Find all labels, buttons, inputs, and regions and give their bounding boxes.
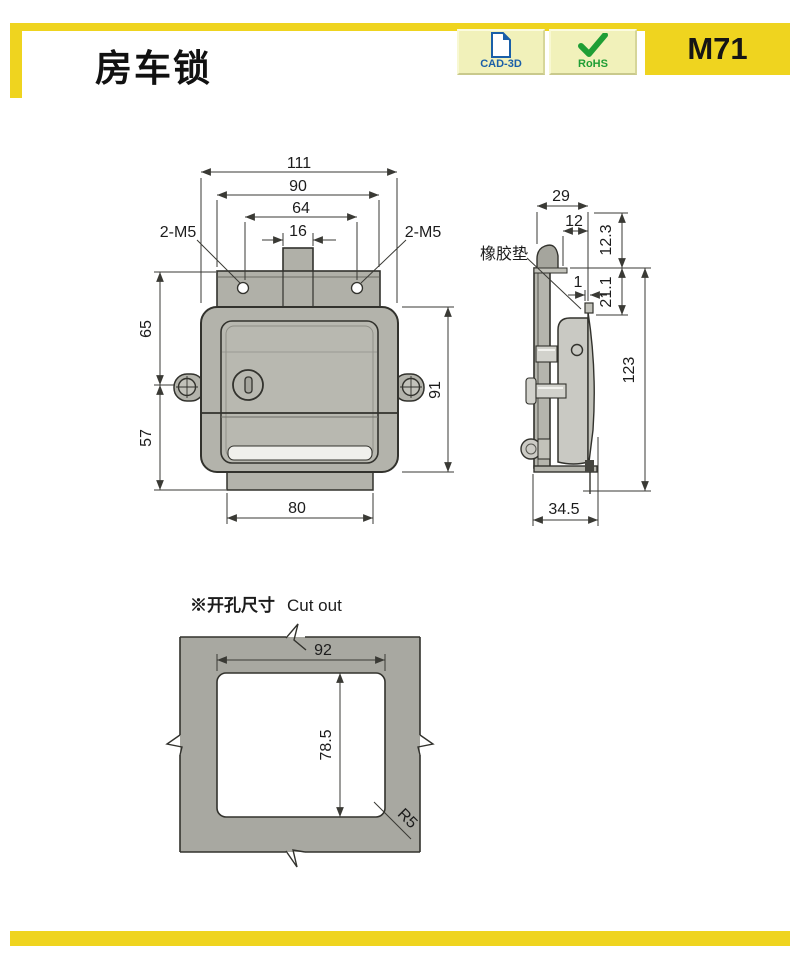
dim-1-label: 1	[574, 274, 583, 291]
rohs-badge-label: RoHS	[578, 58, 608, 71]
rohs-check-icon	[578, 32, 608, 58]
cad-3d-badge[interactable]: CAD-3D	[457, 29, 545, 75]
dim-65-label: 65	[138, 320, 155, 338]
cutout-hole	[217, 673, 385, 817]
dim-80-label: 80	[288, 500, 306, 517]
dim-111-label: 111	[287, 155, 311, 172]
dim-34-5-label: 34.5	[548, 501, 579, 518]
side-hook	[537, 245, 558, 270]
technical-drawing: 111 90 64 16 2-M5 2-M5 65 57 91 80	[0, 0, 790, 953]
front-screw-hole-left	[238, 283, 249, 294]
model-number-box: M71	[645, 23, 790, 75]
screw-left-label: 2-M5	[160, 224, 197, 241]
footer-accent-bar	[10, 931, 790, 946]
dim-29-label: 29	[552, 188, 570, 205]
dim-91-label: 91	[427, 381, 444, 399]
side-paddle-edge	[588, 312, 594, 462]
dim-90-label: 90	[289, 178, 307, 195]
side-flange-plate	[534, 268, 550, 468]
dim-92-label: 92	[314, 642, 332, 659]
header-accent-strip	[10, 23, 22, 98]
cutout-title-en: Cut out	[287, 596, 342, 615]
keyhole	[233, 370, 263, 400]
dim-78-5-label: 78.5	[318, 729, 335, 760]
dim-12-label: 12	[565, 213, 583, 230]
side-foot-pad	[585, 460, 594, 472]
dim-57-label: 57	[138, 429, 155, 447]
screw-right-label: 2-M5	[405, 224, 442, 241]
side-latch-knob	[521, 439, 550, 459]
side-paddle-tip	[585, 303, 593, 313]
dim-21-1-label: 21.1	[598, 276, 615, 307]
dim-12-3-label: 12.3	[598, 224, 615, 255]
rubber-pad-label: 橡胶垫	[480, 245, 528, 263]
cad-badge-label: CAD-3D	[480, 58, 522, 71]
front-view: 111 90 64 16 2-M5 2-M5 65 57 91 80	[138, 155, 454, 524]
rohs-badge[interactable]: RoHS	[549, 29, 637, 75]
side-stud-upper	[536, 346, 557, 362]
front-screw-hole-right	[352, 283, 363, 294]
dim-123-label: 123	[621, 357, 638, 384]
front-bottom-tab	[227, 472, 373, 490]
cutout-view: ※开孔尺寸 Cut out 92 78.5 R5	[167, 595, 433, 867]
dim-16-label: 16	[289, 223, 307, 240]
front-handle-groove	[228, 446, 372, 460]
front-ear-left	[174, 374, 204, 401]
model-number: M71	[687, 31, 747, 67]
dim-64-label: 64	[292, 200, 310, 217]
side-view: 29 12 12.3 橡胶垫 1 21.1 123 34.5	[480, 188, 651, 526]
page-title: 房车锁	[95, 38, 212, 92]
cad-document-icon	[490, 32, 512, 58]
cutout-title-zh: ※开孔尺寸	[190, 595, 275, 615]
